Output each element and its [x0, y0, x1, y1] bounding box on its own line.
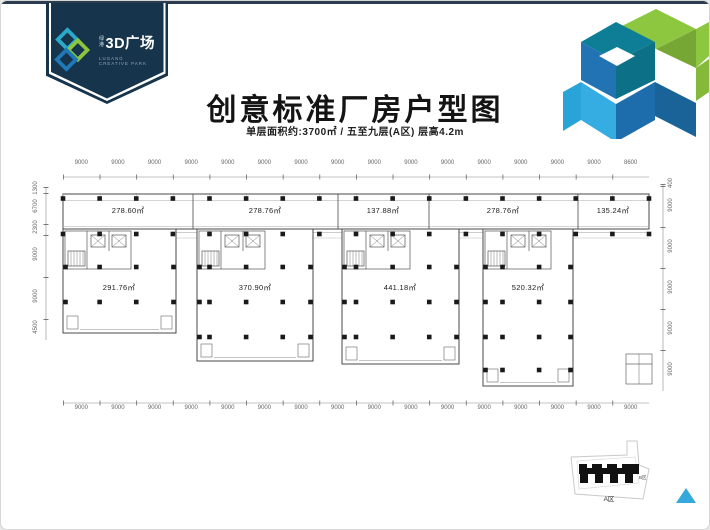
key-map-drawing — [561, 439, 701, 519]
left-dim-3: 2300 — [33, 212, 39, 242]
building-footprint — [579, 464, 639, 483]
wing-area-1: 291.76㎡ — [79, 282, 159, 293]
wing-area-4: 520.32㎡ — [488, 282, 568, 293]
wing-area-2: 370.90㎡ — [215, 282, 295, 293]
key-map-label-b: B区 — [639, 475, 647, 481]
floorplan-page: 绿 港 3D广场 LUGANG CREATIVE PARK 创意标准厂房户型图 … — [0, 0, 710, 530]
key-map-label-a: A区 — [591, 493, 627, 503]
left-dim-5: 9000 — [33, 281, 39, 311]
bottom-dimension-row: 9000900090009000900090009000900090009000… — [63, 405, 649, 411]
banner-content: 绿 港 3D广场 LUGANG CREATIVE PARK — [54, 25, 160, 73]
strip-area-2: 278.76㎡ — [225, 205, 305, 216]
strip-area-1: 278.60㎡ — [88, 205, 168, 216]
site-key-map: A区 B区 — [561, 439, 701, 519]
top-dimension-row: 9000900090009000900090009000900090009000… — [63, 160, 649, 166]
floor-plan-area: 9000900090009000900090009000900090009000… — [26, 156, 686, 416]
brand-small-label: 绿 港 — [99, 37, 104, 48]
brand-text-block: 绿 港 3D广场 LUGANG CREATIVE PARK — [99, 32, 155, 66]
brand-tagline: LUGANG CREATIVE PARK — [99, 56, 155, 66]
strip-area-3: 137.88㎡ — [343, 205, 423, 216]
blue-triangle-marker — [676, 488, 696, 503]
brand-large-label: 3D广场 — [106, 32, 156, 53]
right-end-block — [626, 354, 652, 384]
right-dim-6: 9000 — [668, 354, 674, 384]
cubes-logo-icon — [54, 25, 96, 73]
wing-area-3: 441.18㎡ — [360, 282, 440, 293]
iso-cubes-decoration — [559, 4, 709, 139]
left-dim-6: 4500 — [33, 312, 39, 342]
right-dim-4: 9000 — [668, 272, 674, 302]
right-dim-5: 9000 — [668, 313, 674, 343]
strip-area-4: 278.76㎡ — [463, 205, 543, 216]
left-dim-4: 9000 — [33, 239, 39, 269]
right-dim-3: 9000 — [668, 231, 674, 261]
strip-area-5: 135.24㎡ — [573, 205, 653, 216]
right-dim-2: 9000 — [668, 190, 674, 220]
